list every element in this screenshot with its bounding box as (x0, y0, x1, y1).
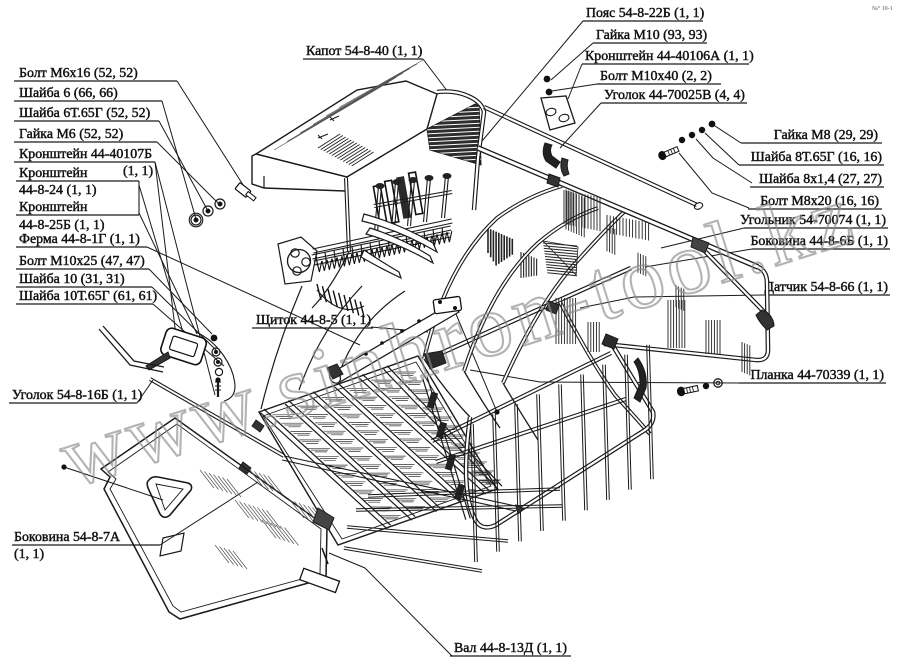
svg-text:(1, 1): (1, 1) (123, 164, 153, 179)
svg-text:Болт М10х40 (2, 2): Болт М10х40 (2, 2) (600, 69, 712, 84)
svg-text:Шайба 10 (31, 31): Шайба 10 (31, 31) (19, 272, 125, 287)
svg-text:Болт М6х16 (52, 52): Болт М6х16 (52, 52) (19, 66, 138, 81)
svg-text:Кронштейн 44-40106А (1, 1): Кронштейн 44-40106А (1, 1) (585, 49, 754, 64)
svg-text:Шайба 8Т.65Г (16, 16): Шайба 8Т.65Г (16, 16) (751, 150, 883, 165)
svg-text:Кронштейн: Кронштейн (19, 200, 88, 215)
svg-text:44-8-25Б (1, 1): 44-8-25Б (1, 1) (19, 218, 105, 233)
svg-text:Болт М10х25 (47, 47): Болт М10х25 (47, 47) (19, 254, 145, 269)
svg-text:Вал 44-8-13Д (1, 1): Вал 44-8-13Д (1, 1) (454, 641, 567, 656)
svg-text:Гайка М8 (29, 29): Гайка М8 (29, 29) (774, 128, 879, 143)
svg-text:Гайка М10 (93, 93): Гайка М10 (93, 93) (596, 28, 708, 43)
svg-text:Боковина 54-8-7А: Боковина 54-8-7А (14, 530, 120, 545)
svg-text:Планка 44-70339 (1, 1): Планка 44-70339 (1, 1) (750, 368, 884, 383)
svg-text:Кронштейн 44-40107Б: Кронштейн 44-40107Б (19, 147, 152, 162)
svg-text:№° 10-1: №° 10-1 (872, 5, 893, 12)
svg-text:Кронштейн: Кронштейн (19, 166, 88, 181)
svg-text:Шайба 6Т.65Г (52, 52): Шайба 6Т.65Г (52, 52) (19, 106, 151, 121)
svg-text:Ферма 44-8-1Г (1, 1): Ферма 44-8-1Г (1, 1) (19, 232, 140, 247)
svg-text:(1, 1): (1, 1) (14, 547, 44, 562)
svg-text:Пояс 54-8-22Б (1, 1): Пояс 54-8-22Б (1, 1) (586, 6, 705, 21)
svg-text:Шайба 10Т.65Г (61, 61): Шайба 10Т.65Г (61, 61) (19, 289, 158, 304)
svg-text:Шайба 6 (66, 66): Шайба 6 (66, 66) (19, 86, 118, 101)
svg-text:44-8-24 (1, 1): 44-8-24 (1, 1) (19, 183, 97, 198)
svg-text:Уголок 44-70025В (4, 4): Уголок 44-70025В (4, 4) (604, 88, 745, 103)
svg-text:Гайка М6 (52, 52): Гайка М6 (52, 52) (19, 127, 124, 142)
svg-text:Капот 54-8-40 (1, 1): Капот 54-8-40 (1, 1) (306, 44, 423, 59)
